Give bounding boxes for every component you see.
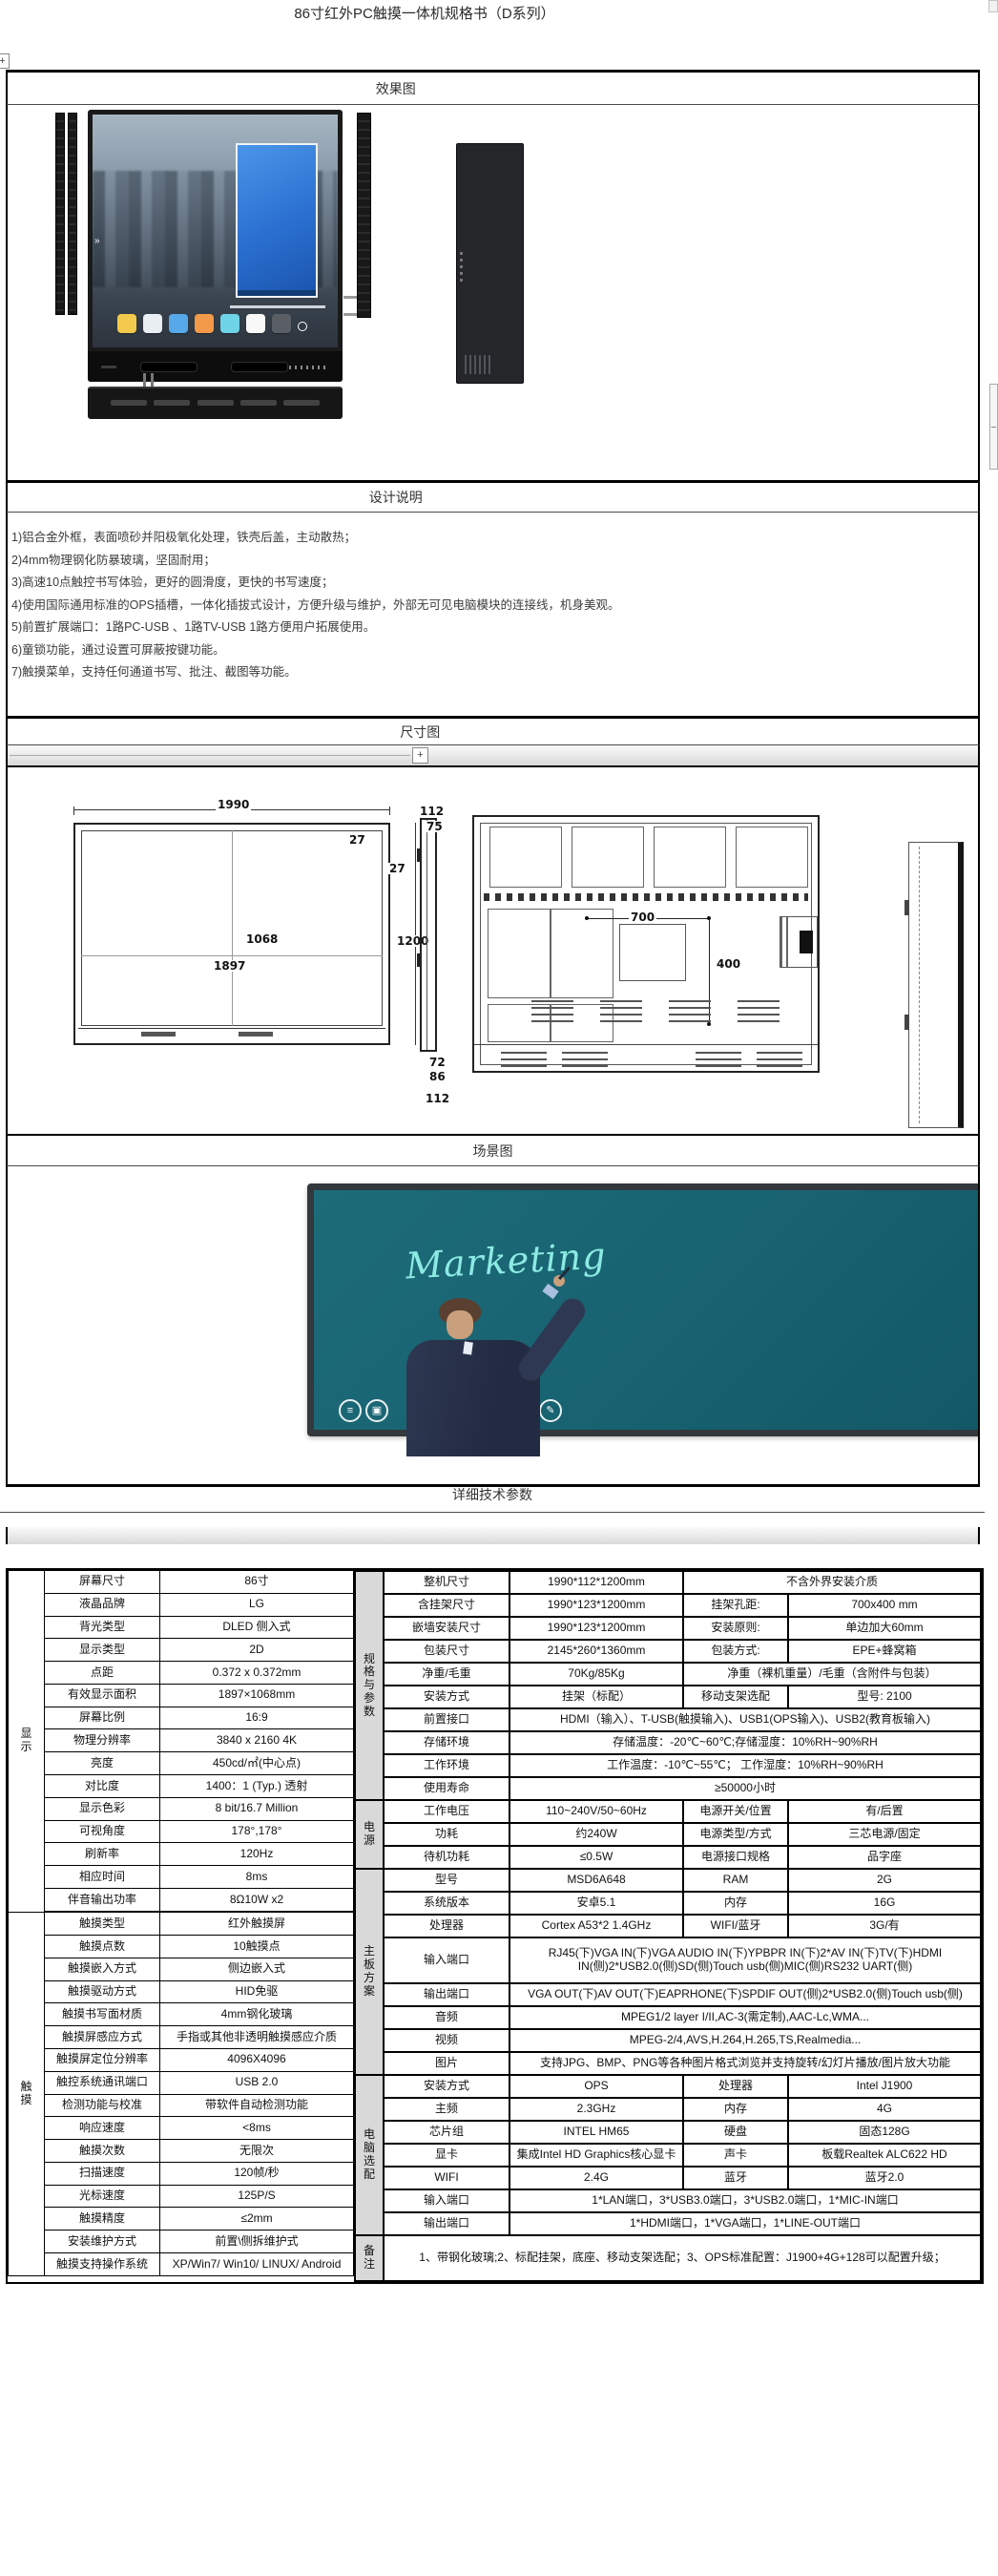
effect-images-section: » [6, 105, 980, 480]
wall-hook [343, 313, 357, 316]
wall-hook [343, 296, 357, 299]
spec-value: 硬盘 [683, 2121, 788, 2144]
spec-label: 可视角度 [45, 1820, 160, 1843]
spec-value: ≤2mm [160, 2208, 354, 2230]
spec-label: 触摸支持操作系统 [45, 2253, 160, 2276]
spec-value: 1990*112*1200mm [509, 1571, 683, 1594]
launcher-screen-preview: » [93, 115, 338, 347]
spec-value: 电源类型/方式 [683, 1823, 788, 1846]
app-icon-row [117, 314, 307, 333]
spec-label: 工作电压 [384, 1800, 509, 1823]
spec-label: 显示类型 [45, 1639, 160, 1662]
ir-dots [289, 366, 329, 369]
ops-slot-drawing [780, 916, 818, 968]
section-header-design: 设计说明 [6, 480, 980, 513]
design-note-line: 6)童锁功能，通过设置可屏蔽按键功能。 [11, 639, 978, 662]
spec-value: XP/Win7/ Win10/ LINUX/ Android [160, 2253, 354, 2276]
spec-label: 触摸嵌入方式 [45, 1958, 160, 1980]
spec-label: 触摸屏定位分辨率 [45, 2049, 160, 2072]
group-label: 电 源 [355, 1800, 384, 1869]
spec-value: HDMI（输入）、T-USB(触摸输入)、USB1(OPS输入)、USB2(教育… [509, 1708, 981, 1731]
spec-label: 待机功耗 [384, 1846, 509, 1869]
back-dimension-view: 700 400 [472, 815, 820, 1073]
spec-value: <8ms [160, 2117, 354, 2140]
spec-label: 输出端口 [384, 1983, 509, 2006]
dim-label-27-top: 27 [347, 834, 367, 846]
bottom-pin [151, 373, 154, 387]
spec-value: 不含外界安装介质 [683, 1571, 981, 1594]
spec-label: 触摸驱动方式 [45, 1980, 160, 2003]
spec-label: 响应速度 [45, 2117, 160, 2140]
spec-value: 10触摸点 [160, 1936, 354, 1958]
side-view-left-1 [55, 113, 65, 315]
dim-label-1990: 1990 [216, 799, 251, 810]
design-note-line: 5)前置扩展端口：1路PC-USB 、1路TV-USB 1路方便用户拓展使用。 [11, 617, 978, 639]
group-label: 触 摸 [9, 1912, 45, 2275]
spec-value: 1897×1068mm [160, 1684, 354, 1707]
app-icon [220, 314, 239, 333]
right-side-dimension-view [908, 842, 964, 1128]
spec-value: EPE+蜂窝箱 [788, 1640, 981, 1663]
spec-label: 点距 [45, 1662, 160, 1685]
spec-value: 包装方式: [683, 1640, 788, 1663]
spec-value: 侧边嵌入式 [160, 1958, 354, 1980]
dim-label-112-bottom: 112 [424, 1093, 451, 1104]
spec-value: 支持JPG、BMP、PNG等各种图片格式浏览并支持旋转/幻灯片播放/图片放大功能 [509, 2052, 981, 2075]
spec-table-left: 显 示屏幕尺寸86寸液晶品牌LG背光类型DLED 侧入式显示类型2D点距0.37… [8, 1570, 354, 2276]
spec-value: 8ms [160, 1866, 354, 1889]
spec-label: 净重/毛重 [384, 1663, 509, 1686]
spec-value: 蓝牙2.0 [788, 2167, 981, 2189]
dim-label-75: 75 [425, 821, 445, 832]
spec-label: 工作环境 [384, 1754, 509, 1777]
scrollbar-thumb[interactable] [989, 384, 998, 470]
spec-value: MSD6A648 [509, 1869, 683, 1892]
spec-value: 存储温度：-20℃~60℃;存储湿度：10%RH~90%RH [509, 1731, 981, 1754]
spec-value: 3840 x 2160 4K [160, 1729, 354, 1752]
outline-group-band: + [6, 745, 980, 765]
spec-label: 光标速度 [45, 2185, 160, 2208]
section-header-scene-label: 场景图 [473, 1141, 513, 1161]
spec-value: 3G/有 [788, 1915, 981, 1937]
spec-label: 安装方式 [384, 2075, 509, 2098]
spec-value: 1*HDMI端口，1*VGA端口，1*LINE-OUT端口 [509, 2212, 981, 2235]
spec-label: 处理器 [384, 1915, 509, 1937]
spec-value: 三芯电源/固定 [788, 1823, 981, 1846]
spec-label: 输入端口 [384, 1937, 509, 1983]
spec-label: 有效显示面积 [45, 1684, 160, 1707]
group-expand-button[interactable]: + [412, 747, 428, 764]
spec-value: 70Kg/85Kg [509, 1663, 683, 1686]
spec-value: 固态128G [788, 2121, 981, 2144]
spec-label: 伴音输出功率 [45, 1888, 160, 1912]
spec-value: 手指或其他非透明触摸感应介质 [160, 2026, 354, 2049]
spec-value: 有/后置 [788, 1800, 981, 1823]
section-header-specs: 详细技术参数 [0, 1485, 985, 1504]
spec-value: Cortex A53*2 1.4GHz [509, 1915, 683, 1937]
spec-label: 显示色彩 [45, 1797, 160, 1820]
spec-label: 触摸类型 [45, 1912, 160, 1936]
dim-label-1068: 1068 [244, 933, 280, 945]
gallery-icon: ▣ [365, 1399, 388, 1422]
dim-label-112-top: 112 [418, 806, 446, 817]
dim-label-400: 400 [715, 958, 742, 970]
spec-label: 功耗 [384, 1823, 509, 1846]
spec-value: ≤0.5W [509, 1846, 683, 1869]
spec-label: 芯片组 [384, 2121, 509, 2144]
spec-value: MPEG-2/4,AVS,H.264,H.265,TS,Realmedia... [509, 2029, 981, 2052]
spec-value: 2.3GHz [509, 2098, 683, 2121]
design-note-line: 4)使用国际通用标准的OPS插槽，一体化插拔式设计，方便升级与维护，外部无可见电… [11, 595, 978, 618]
spec-label: 音频 [384, 2006, 509, 2029]
spec-value: 16G [788, 1892, 981, 1915]
spec-value: 挂架（标配） [509, 1686, 683, 1708]
spec-label: 检测功能与校准 [45, 2094, 160, 2117]
app-icon [246, 314, 265, 333]
spec-label: 液晶品牌 [45, 1593, 160, 1616]
spec-label: WIFI [384, 2167, 509, 2189]
logo-mark [101, 366, 116, 368]
spec-value: 单边加大60mm [788, 1617, 981, 1640]
spec-value: 内存 [683, 2098, 788, 2121]
dim-label-1897: 1897 [212, 960, 247, 972]
spec-label: 包装尺寸 [384, 1640, 509, 1663]
spec-label: 扫描速度 [45, 2162, 160, 2185]
back-view-image [456, 143, 524, 384]
spec-value: Intel J1900 [788, 2075, 981, 2098]
spec-value: 110~240V/50~60Hz [509, 1800, 683, 1823]
spec-label: 安装维护方式 [45, 2230, 160, 2253]
spec-value: 16:9 [160, 1707, 354, 1729]
spec-value: RJ45(下)VGA IN(下)VGA AUDIO IN(下)YPBPR IN(… [509, 1937, 981, 1983]
spec-value: 安装原则: [683, 1617, 788, 1640]
spec-value: 700x400 mm [788, 1594, 981, 1617]
design-note-line: 3)高速10点触控书写体验，更好的圆滑度，更快的书写速度； [11, 572, 978, 595]
spec-value: ≥50000小时 [509, 1777, 981, 1800]
spec-label: 存储环境 [384, 1731, 509, 1754]
document-title: 86寸红外PC触摸一体机规格书（D系列） [0, 3, 849, 23]
spec-value: 型号: 2100 [788, 1686, 981, 1708]
spec-value: 电源开关/位置 [683, 1800, 788, 1823]
spec-value: 无限次 [160, 2140, 354, 2163]
group-label: 显 示 [9, 1571, 45, 1913]
design-note-line: 7)触摸菜单，支持任何通道书写、批注、截图等功能。 [11, 661, 978, 684]
speaker-slot [140, 362, 198, 372]
dim-label-27-side: 27 [387, 863, 407, 874]
section-header-scene: 场景图 [6, 1134, 980, 1166]
spec-label: 视频 [384, 2029, 509, 2052]
spec-value: 移动支架选配 [683, 1686, 788, 1708]
spec-value: 集成Intel HD Graphics核心显卡 [509, 2144, 683, 2167]
spec-label: 含挂架尺寸 [384, 1594, 509, 1617]
outline-group-band-2 [6, 1527, 980, 1544]
spec-value: 178°,178° [160, 1820, 354, 1843]
design-note-line: 1)铝合金外框，表面喷砂并阳极氧化处理，铁壳后盖，主动散热； [11, 527, 978, 550]
spec-label: 嵌墙安装尺寸 [384, 1617, 509, 1640]
spec-label: 图片 [384, 2052, 509, 2075]
section-header-dimension: 尺寸图 [6, 716, 980, 745]
section-header-dimension-label: 尺寸图 [400, 723, 440, 742]
bottom-view-image [88, 387, 343, 419]
spec-value: 120Hz [160, 1843, 354, 1866]
front-dimension-view [73, 823, 390, 1045]
spec-table: 显 示屏幕尺寸86寸液晶品牌LG背光类型DLED 侧入式显示类型2D点距0.37… [6, 1568, 984, 2284]
spec-label: 型号 [384, 1869, 509, 1892]
spec-value: 声卡 [683, 2144, 788, 2167]
front-view-image: » [88, 110, 343, 382]
spec-value: 前置\侧拆维护式 [160, 2230, 354, 2253]
scene-image-section: Marketing ≡▣↶✎ [6, 1166, 980, 1487]
spec-value: 4mm钢化玻璃 [160, 2003, 354, 2026]
handwriting-text: Marketing [405, 1235, 607, 1288]
section-header-effect-label: 效果图 [376, 79, 416, 98]
spec-label: 屏幕尺寸 [45, 1571, 160, 1594]
spec-value: 安卓5.1 [509, 1892, 683, 1915]
spec-value: 1*LAN端口，3*USB3.0端口，3*USB2.0端口，1*MIC-IN端口 [509, 2189, 981, 2212]
app-icon [143, 314, 162, 333]
spec-value: MPEG1/2 layer I/II,AC-3(需定制),AAC-Lc,WMA.… [509, 2006, 981, 2029]
spec-value: 1400：1 (Typ.) 透射 [160, 1775, 354, 1798]
dimension-drawings: 1990 27 27 1200 1068 1897 112 75 72 86 1… [6, 765, 980, 1134]
side-view-right [357, 113, 371, 318]
scrollbar-corner[interactable] [988, 0, 998, 12]
spec-label: 对比度 [45, 1775, 160, 1798]
spec-label: 触摸点数 [45, 1936, 160, 1958]
app-icon [272, 314, 291, 333]
spec-value: 约240W [509, 1823, 683, 1846]
section-header-design-label: 设计说明 [369, 488, 423, 507]
spec-label: 触摸次数 [45, 2140, 160, 2163]
spec-value: 挂架孔距: [683, 1594, 788, 1617]
sidebar-arrow-icon: » [94, 237, 100, 246]
spec-value: 2D [160, 1639, 354, 1662]
spec-value: 品字座 [788, 1846, 981, 1869]
spec-value: 2G [788, 1869, 981, 1892]
section-header-effect: 效果图 [6, 70, 980, 105]
menu-icon: ≡ [339, 1399, 362, 1422]
spec-label: 触摸书写面材质 [45, 2003, 160, 2026]
spec-label: 输出端口 [384, 2212, 509, 2235]
spec-value: 1990*123*1200mm [509, 1594, 683, 1617]
spec-value: 1990*123*1200mm [509, 1617, 683, 1640]
spec-value: 电源接口规格 [683, 1846, 788, 1869]
spec-value: 120帧/秒 [160, 2162, 354, 2185]
spec-value: 2.4G [509, 2167, 683, 2189]
outline-collapse-button[interactable]: + [0, 53, 10, 69]
spec-label: 物理分辨率 [45, 1729, 160, 1752]
speaker-bar [88, 351, 343, 382]
side-dimension-view [420, 818, 437, 1052]
dim-label-700: 700 [629, 911, 656, 923]
spec-value: 红外触摸屏 [160, 1912, 354, 1936]
bottom-pin [143, 373, 146, 387]
spec-value: 内存 [683, 1892, 788, 1915]
spec-value: 4096X4096 [160, 2049, 354, 2072]
spec-label: 亮度 [45, 1752, 160, 1775]
spec-label: 输入端口 [384, 2189, 509, 2212]
spec-value: 1、带钢化玻璃;2、标配挂架，底座、移动支架选配；3、OPS标准配置：J1900… [384, 2235, 981, 2281]
spec-value: 处理器 [683, 2075, 788, 2098]
spec-value: 工作温度：-10℃~55℃； 工作湿度：10%RH~90%RH [509, 1754, 981, 1777]
spec-label: 系统版本 [384, 1892, 509, 1915]
desktop-window-graphic [236, 143, 318, 298]
spec-value: DLED 侧入式 [160, 1616, 354, 1639]
spec-label: 屏幕比例 [45, 1707, 160, 1729]
side-view-left-2 [68, 113, 77, 315]
spec-value: RAM [683, 1869, 788, 1892]
group-label: 主 板 方 案 [355, 1869, 384, 2075]
spec-value: 蓝牙 [683, 2167, 788, 2189]
spec-value: 板载Realtek ALC622 HD [788, 2144, 981, 2167]
spec-label: 刷新率 [45, 1843, 160, 1866]
dim-label-72: 72 [427, 1057, 447, 1068]
spec-table-right: 规 格 与 参 数整机尺寸1990*112*1200mm不含外界安装介质含挂架尺… [354, 1570, 982, 2282]
spec-value: HID免驱 [160, 1980, 354, 2003]
spec-label: 整机尺寸 [384, 1571, 509, 1594]
spec-value: 2145*260*1360mm [509, 1640, 683, 1663]
spec-label: 触控系统通讯端口 [45, 2071, 160, 2094]
spec-value: INTEL HM65 [509, 2121, 683, 2144]
spec-value: LG [160, 1593, 354, 1616]
spec-label: 显卡 [384, 2144, 509, 2167]
spec-label: 触摸精度 [45, 2208, 160, 2230]
speaker-slot [231, 362, 288, 372]
spec-value: 125P/S [160, 2185, 354, 2208]
app-icon [195, 314, 214, 333]
app-icon [169, 314, 188, 333]
app-icon [117, 314, 136, 333]
design-note-line: 2)4mm物理钢化防暴玻璃，坚固耐用； [11, 550, 978, 573]
spec-value: 450cd/㎡(中心点) [160, 1752, 354, 1775]
spec-value: OPS [509, 2075, 683, 2098]
spec-label: 触摸屏感应方式 [45, 2026, 160, 2049]
spec-value: 8 bit/16.7 Million [160, 1797, 354, 1820]
group-label: 规 格 与 参 数 [355, 1571, 384, 1800]
spec-label: 使用寿命 [384, 1777, 509, 1800]
group-label: 电 脑 选 配 [355, 2075, 384, 2235]
presenter-figure [403, 1298, 593, 1456]
spec-value: WIFI/蓝牙 [683, 1915, 788, 1937]
spec-value: 0.372 x 0.372mm [160, 1662, 354, 1685]
home-dot-icon [298, 322, 307, 331]
spec-value: 带软件自动检测功能 [160, 2094, 354, 2117]
spec-label: 安装方式 [384, 1686, 509, 1708]
outline-group-line [10, 755, 410, 756]
spec-label: 相应时间 [45, 1866, 160, 1889]
specs-divider [0, 1512, 985, 1513]
spec-label: 前置接口 [384, 1708, 509, 1731]
spec-value: 8Ω10W x2 [160, 1888, 354, 1912]
group-label: 备 注 [355, 2235, 384, 2281]
spec-value: VGA OUT(下)AV OUT(下)EAPRHONE(下)SPDIF OUT(… [509, 1983, 981, 2006]
spec-value: 86寸 [160, 1571, 354, 1594]
spec-value: USB 2.0 [160, 2071, 354, 2094]
design-notes: 1)铝合金外框，表面喷砂并阳极氧化处理，铁壳后盖，主动散热；2)4mm物理钢化防… [6, 513, 980, 716]
spec-label: 背光类型 [45, 1616, 160, 1639]
spec-sheet-page: 86寸红外PC触摸一体机规格书（D系列） + 效果图 » [0, 0, 998, 2576]
spec-label: 主频 [384, 2098, 509, 2121]
spec-value: 净重（裸机重量）/毛重（含附件与包装） [683, 1663, 981, 1686]
dim-label-86: 86 [427, 1071, 447, 1082]
spec-value: 4G [788, 2098, 981, 2121]
